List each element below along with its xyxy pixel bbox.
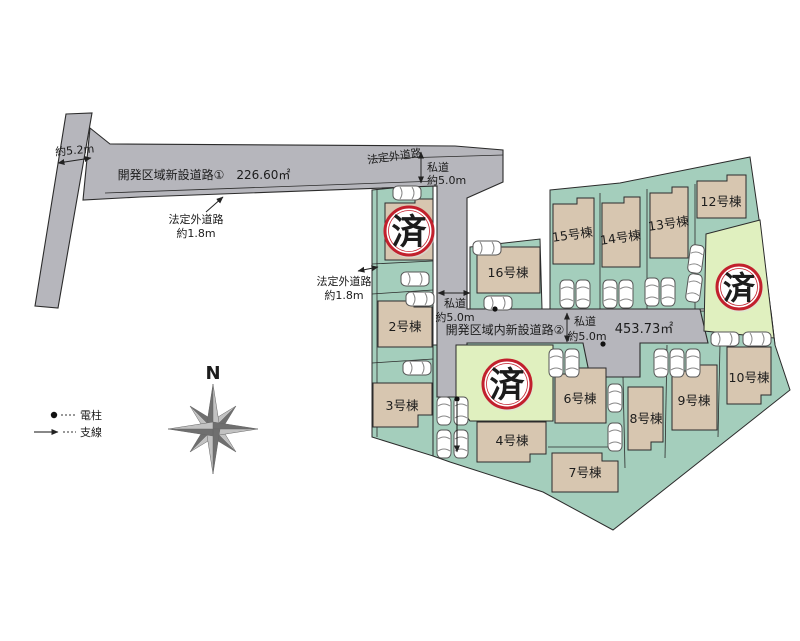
sold-stamp: 済 <box>483 360 533 411</box>
dim-label: 約5.0m <box>435 310 474 324</box>
lot-6-label: 6号棟 <box>564 391 597 406</box>
compass-cardinal-points <box>168 384 258 474</box>
car-icon <box>403 361 431 375</box>
car-icon <box>661 278 675 306</box>
car-icon <box>565 349 579 377</box>
car-icon <box>560 280 574 308</box>
dim-label: 約1.8m <box>324 288 363 302</box>
dim-label: 私道 <box>427 160 449 174</box>
lot-7-label: 7号棟 <box>569 465 602 480</box>
utility-pole-icon <box>454 396 459 401</box>
lot-16-label: 16号棟 <box>488 265 529 280</box>
lot-4-label: 4号棟 <box>496 433 529 448</box>
car-icon <box>645 278 659 306</box>
car-icon <box>437 430 451 458</box>
lot-12-label: 12号棟 <box>701 194 742 209</box>
car-icon <box>608 423 622 451</box>
car-icon <box>654 349 668 377</box>
car-icon <box>484 296 512 310</box>
car-icon <box>393 186 421 200</box>
dim-label: 約1.8m <box>176 226 215 240</box>
site-plan-page: 2号棟 3号棟 4号棟 6号棟 7号棟 8号棟 9号棟 10号棟 12号棟 13… <box>0 0 800 641</box>
dim-label: 法定外道路 <box>169 212 224 226</box>
lot-3-label: 3号棟 <box>386 398 419 413</box>
car-icon <box>743 332 771 346</box>
dim-hodo-left: 法定外道路 約1.8m <box>317 267 379 302</box>
dim-label: 私道 <box>574 314 596 328</box>
lot-9-label: 9号棟 <box>678 393 711 408</box>
sold-stamp: 済 <box>717 265 763 312</box>
dim-label: 約5.0m <box>567 329 606 343</box>
car-icon <box>711 332 739 346</box>
utility-pole-icon <box>51 412 57 418</box>
car-icon <box>619 280 633 308</box>
car-icon <box>549 349 563 377</box>
road2-label: 開発区域内新設道路② <box>446 322 565 337</box>
legend-pole-label: 電柱 <box>80 408 102 422</box>
compass-rose: N <box>168 363 258 474</box>
lot-2-label: 2号棟 <box>389 319 422 334</box>
sold-stamp-text: 済 <box>489 366 525 406</box>
lot-8-label: 8号棟 <box>630 411 663 426</box>
car-icon <box>406 292 434 306</box>
map-legend: 電柱 支線 <box>34 408 102 439</box>
lot-10-label: 10号棟 <box>729 370 770 385</box>
dim-label: 法定外道路 <box>317 274 372 288</box>
dim-hodo-top-center: 法定外道路 約1.8m <box>169 197 224 240</box>
car-icon <box>454 430 468 458</box>
car-icon <box>576 280 590 308</box>
car-icon <box>473 241 501 255</box>
road1-label: 開発区域新設道路① 226.60㎡ <box>118 167 291 182</box>
car-icon <box>603 280 617 308</box>
road2-area-label: 453.73㎡ <box>615 322 674 337</box>
car-icon <box>670 349 684 377</box>
sold-stamp-text: 済 <box>391 213 427 253</box>
car-icon <box>437 397 451 425</box>
dim-label: 約5.0m <box>427 173 466 187</box>
car-icon <box>608 384 622 412</box>
legend-wire-label: 支線 <box>80 425 102 439</box>
car-icon <box>401 272 429 286</box>
sold-stamp-text: 済 <box>723 269 756 307</box>
site-plan-map: 2号棟 3号棟 4号棟 6号棟 7号棟 8号棟 9号棟 10号棟 12号棟 13… <box>0 0 800 641</box>
car-icon <box>686 349 700 377</box>
dim-label: 私道 <box>444 296 466 310</box>
utility-pole-icon <box>492 306 497 311</box>
compass-north-label: N <box>205 363 220 384</box>
sold-stamp: 済 <box>385 207 435 258</box>
